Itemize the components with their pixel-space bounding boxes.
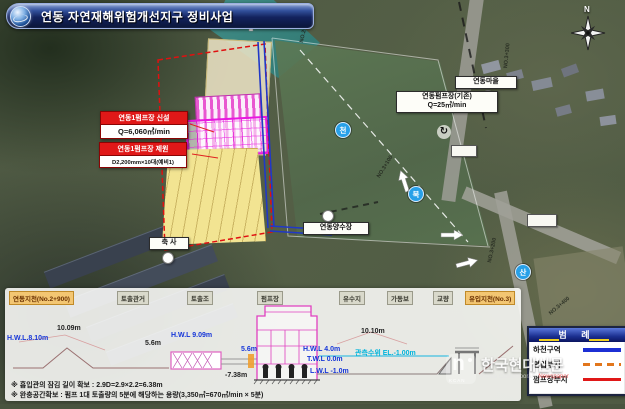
legend-title-underline <box>539 339 559 341</box>
legend-label: 하천구역 <box>533 344 561 355</box>
page-title: 연동 자연재해위험개선지구 정비사업 <box>41 8 233 25</box>
village-building <box>599 115 616 126</box>
title-bar: 연동 자연재해위험개선지구 정비사업 <box>6 3 314 29</box>
compass-n-label: N <box>584 5 590 14</box>
badge-stream: 천 <box>335 122 351 138</box>
legend-row-pumpsite: 펌프장부지 <box>529 372 625 387</box>
pump-depth-label: -7.38m <box>225 372 247 379</box>
site-corridor <box>202 38 272 155</box>
pump-bays <box>195 93 264 152</box>
span3-label: 10.10m <box>361 328 385 335</box>
road-east <box>461 187 621 265</box>
globe-icon <box>10 6 31 27</box>
lwl-right-label: L.W.L -1.0m <box>310 368 349 375</box>
pump-station-structure <box>185 116 269 158</box>
pump-spec-header: 연동1펌프장 제원 <box>99 142 187 156</box>
barn-roof <box>44 217 192 288</box>
badge-san: 산 <box>515 264 531 280</box>
village-building <box>561 64 579 78</box>
legend-title-underline <box>589 339 609 341</box>
station-label: NO.3+400 <box>548 296 571 317</box>
existing-pump-name: 연동펌프장(기존) <box>401 93 493 102</box>
station-label: NO.3+200 <box>487 237 498 263</box>
station-label: NO.3+100 <box>376 155 394 180</box>
legend-label: 편입부지 <box>533 359 561 370</box>
legend-swatch-incorporated <box>583 363 621 366</box>
twl-right-label: T.W.L 0.0m <box>307 356 343 363</box>
note-buffer: ※ 완충공간확보 : 펌프 1대 토출량의 5분에 해당하는 용량(3,350㎥… <box>11 390 263 400</box>
note-suction: ※ 흡입관의 잠김 길이 확보 : 2.9D=2.9×2.2=6.38m <box>11 380 163 390</box>
village-building <box>555 104 572 117</box>
existing-pump-label: 연동펌프장(기존) Q=25㎥/min <box>396 91 498 113</box>
village-building <box>585 89 604 102</box>
rotate-icon: ↻ <box>437 125 451 139</box>
hwl-tank-label: H.W.L 9.09m <box>171 332 212 339</box>
road-label-chip <box>451 145 477 157</box>
legend-swatch-pumpsite <box>583 378 621 381</box>
legend-swatch-river <box>583 348 621 352</box>
pump-spec-body: D2,200mm×10대(예비1) <box>99 156 187 168</box>
village-building <box>481 60 501 74</box>
levee-height-label: 10.09m <box>57 325 81 332</box>
legend-label: 펌프장부지 <box>533 374 568 385</box>
road-label-chip <box>527 214 557 227</box>
detention-channel <box>268 36 494 250</box>
station-label: NO.3+300 <box>503 43 512 69</box>
compass-icon <box>571 16 605 50</box>
new-pump-header: 연동1펌프장 신설 <box>100 111 188 125</box>
span2-label: 5.6m <box>241 346 257 353</box>
existing-pump-capacity: Q=25㎥/min <box>401 102 493 111</box>
barn-label: 축 사 <box>149 237 189 250</box>
hwl-left-label: H.W.L.8.10m <box>7 335 48 342</box>
village-label: 연동마을 <box>455 76 517 89</box>
observed-level-label: 관측수위 EL.-1.00m <box>355 348 416 358</box>
new-pump-capacity: Q=6,060㎥/min <box>100 125 188 139</box>
legend-row-river: 하천구역 <box>529 342 625 357</box>
badge-buk: 북 <box>408 186 424 202</box>
legend-box: 범 례 하천구역 편입부지 펌프장부지 <box>527 326 625 396</box>
hwl-right-label: H.W.L 4.0m <box>303 346 340 353</box>
legend-title: 범 례 <box>529 328 625 342</box>
marker-dot-intake <box>322 210 334 222</box>
marker-dot-barn <box>162 252 174 264</box>
cross-section-panel: 연동지천(No.2+900) 토출관거 토출조 펌프장 유수지 가동보 교량 유… <box>5 288 521 401</box>
span1-label: 5.6m <box>145 340 161 347</box>
legend-row-incorporated: 편입부지 <box>529 357 625 372</box>
intake-station-label: 연동양수장 <box>303 222 369 235</box>
new-pump-infobox: 연동1펌프장 신설 Q=6,060㎥/min <box>100 111 188 139</box>
pump-spec-infobox: 연동1펌프장 제원 D2,200mm×10대(예비1) <box>99 142 187 168</box>
village-building <box>531 77 553 91</box>
